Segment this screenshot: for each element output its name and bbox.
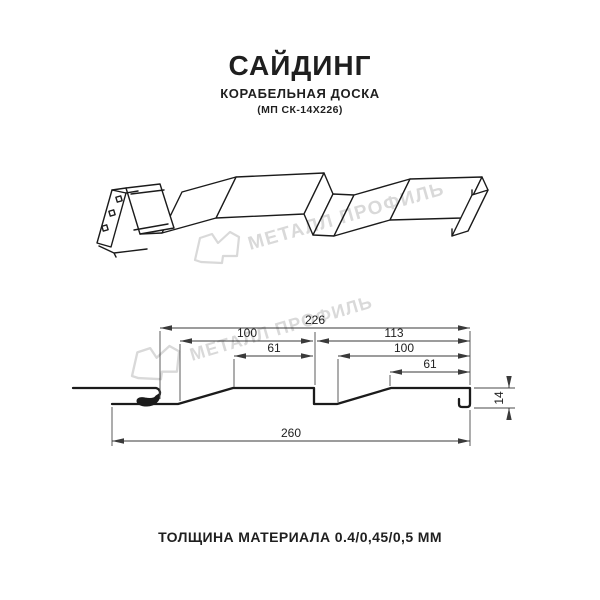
thickness-note: ТОЛЩИНА МАТЕРИАЛА 0.4/0,45/0,5 ММ	[0, 529, 600, 545]
dim-label-14: 14	[492, 391, 506, 405]
profile-outline	[112, 388, 470, 407]
flange-bottom-edge	[99, 246, 147, 257]
dim-label-61-right: 61	[423, 357, 437, 371]
brand-logo-icon	[195, 232, 239, 263]
dim-label-100-right: 100	[394, 341, 414, 355]
product-drawing-page: САЙДИНГ КОРАБЕЛЬНАЯ ДОСКА (МП СК-14Х226)	[0, 0, 600, 600]
adjacent-panel-edge	[73, 388, 160, 396]
dim-label-260: 260	[281, 426, 301, 440]
dim-label-61-left: 61	[267, 341, 281, 355]
watermark-lower: МЕТАЛЛ ПРОФИЛЬ	[132, 292, 375, 379]
technical-drawing-canvas: 226 100 113 61 100 61 260 14 МЕТАЛЛ ПРОФ…	[0, 0, 600, 600]
dim-label-113: 113	[384, 326, 403, 340]
brand-logo-icon	[132, 346, 179, 379]
